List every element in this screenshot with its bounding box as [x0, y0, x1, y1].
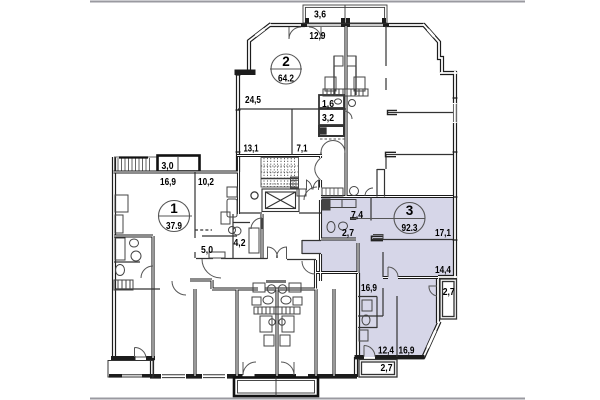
- svg-text:92.3: 92.3: [402, 222, 418, 234]
- svg-text:5,0: 5,0: [201, 244, 213, 256]
- svg-text:1: 1: [170, 201, 178, 216]
- svg-text:12,9: 12,9: [309, 30, 325, 42]
- svg-text:7,1: 7,1: [297, 143, 308, 155]
- svg-text:3,0: 3,0: [162, 160, 174, 172]
- svg-text:13,1: 13,1: [244, 143, 259, 155]
- svg-text:7,4: 7,4: [351, 209, 363, 221]
- svg-text:1,6: 1,6: [322, 98, 334, 110]
- svg-text:12,4: 12,4: [378, 345, 394, 357]
- svg-text:16,9: 16,9: [361, 282, 377, 294]
- svg-text:4,2: 4,2: [234, 237, 246, 249]
- svg-text:3,2: 3,2: [322, 112, 334, 124]
- svg-text:2,7: 2,7: [342, 227, 354, 239]
- svg-text:37.9: 37.9: [166, 220, 182, 232]
- svg-text:24,5: 24,5: [245, 94, 261, 106]
- svg-text:2,7: 2,7: [443, 286, 455, 298]
- svg-text:2,7: 2,7: [381, 362, 393, 374]
- svg-text:14,4: 14,4: [435, 264, 451, 276]
- svg-text:16,9: 16,9: [160, 176, 176, 188]
- svg-text:64.2: 64.2: [278, 73, 294, 85]
- svg-text:3,6: 3,6: [314, 9, 326, 21]
- svg-text:17,1: 17,1: [435, 227, 451, 239]
- svg-text:2: 2: [282, 54, 290, 69]
- svg-text:10,2: 10,2: [198, 176, 214, 188]
- svg-text:3: 3: [406, 203, 414, 218]
- svg-text:16,9: 16,9: [399, 345, 415, 357]
